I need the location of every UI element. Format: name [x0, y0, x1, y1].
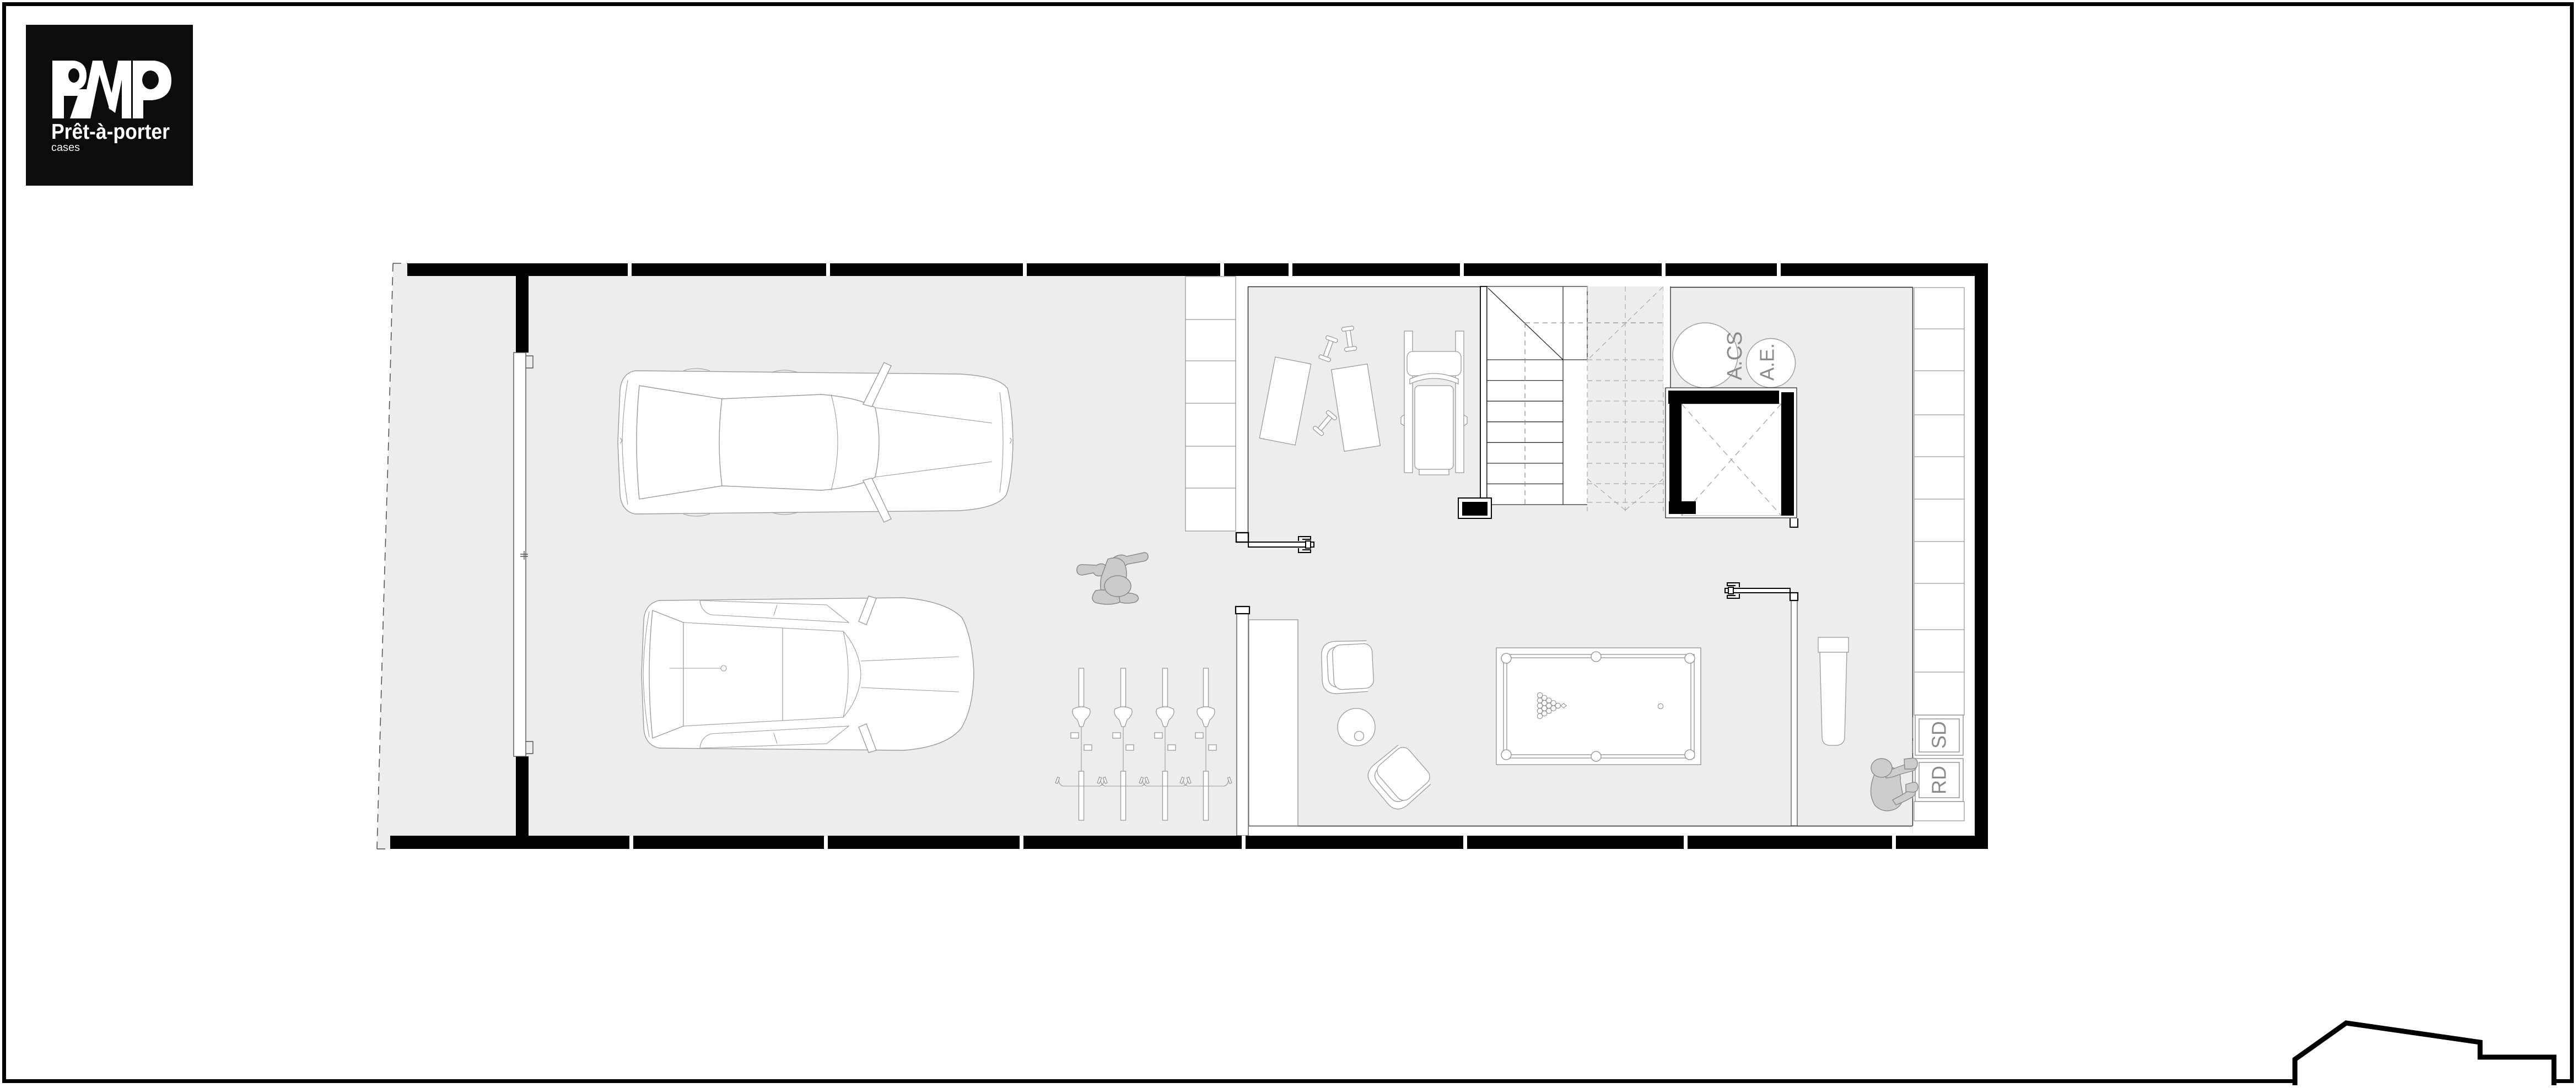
svg-text:A.E.: A.E.	[1756, 343, 1779, 381]
svg-text:cases: cases	[51, 142, 80, 154]
svg-text:RD: RD	[1928, 766, 1950, 794]
svg-text:A.CS: A.CS	[1723, 332, 1747, 381]
svg-text:SD: SD	[1928, 721, 1950, 749]
svg-text:Prêt-à-porter: Prêt-à-porter	[51, 120, 170, 144]
